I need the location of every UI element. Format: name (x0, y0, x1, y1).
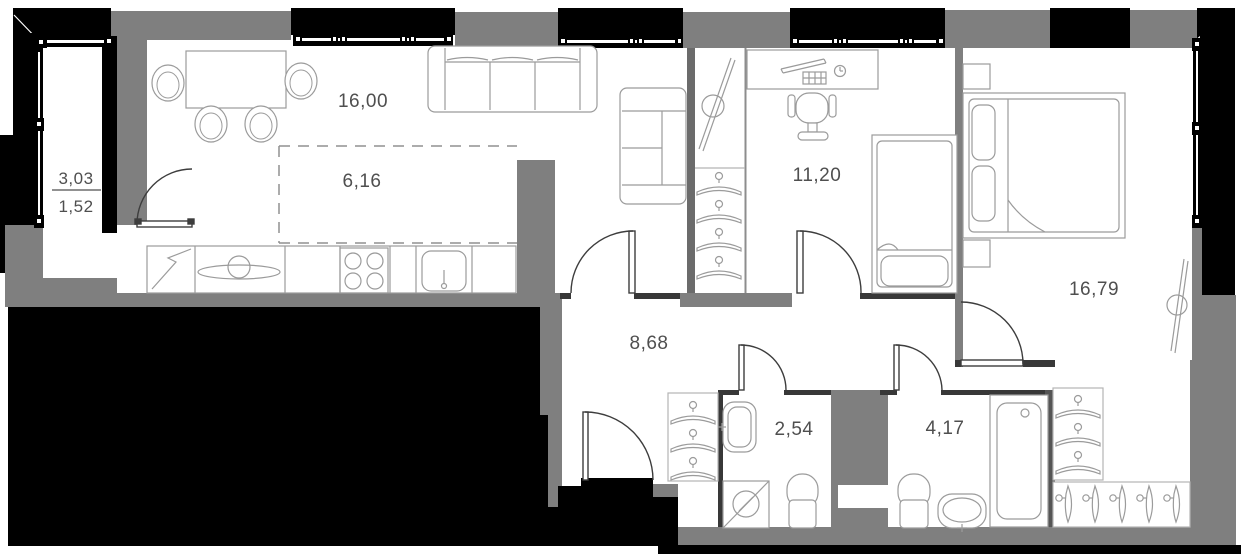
coat-rack (668, 393, 718, 481)
chair-icon (245, 106, 277, 142)
wall-segment (540, 293, 562, 415)
pillow-icon (972, 105, 995, 160)
wall-segment (13, 33, 35, 228)
wall-segment (1200, 295, 1236, 545)
sofa-3seat-icon (428, 46, 597, 112)
wall-segment (718, 390, 723, 527)
master-bedroom-area-label: 16,79 (1069, 279, 1119, 300)
pillow-icon (881, 256, 948, 286)
wall-segment (455, 12, 558, 46)
entrance-threshold (581, 478, 653, 486)
desk-icon (747, 50, 878, 89)
window-icon (35, 36, 116, 48)
wall-segment (683, 12, 790, 48)
hallway-area-label: 8,68 (630, 333, 669, 354)
wall-segment (1200, 8, 1235, 295)
wall-segment (945, 10, 1050, 48)
wall-segment (5, 293, 560, 307)
chair-icon (195, 106, 227, 142)
nightstand-icon (963, 64, 990, 89)
wall-segment (1050, 8, 1130, 48)
floor-plan: 16,00 6,16 11,20 16,79 8,68 2,54 4,17 3,… (0, 0, 1241, 554)
wall-segment (1130, 10, 1197, 48)
wall-segment (291, 8, 455, 35)
master-bedroom-floor (963, 367, 1055, 390)
window-icon (34, 47, 44, 228)
single-bed-icon (872, 135, 957, 293)
window-icon (293, 33, 453, 46)
living-kitchen-area-label: 16,00 (338, 91, 388, 112)
kitchen-counter (147, 246, 516, 293)
kitchen-zone-area-label: 6,16 (343, 171, 382, 192)
toilet-icon (898, 474, 930, 528)
exterior-void (658, 545, 1241, 554)
wall-segment (680, 293, 792, 307)
balcony-floor (43, 46, 102, 278)
wall-segment (955, 360, 961, 367)
wall-segment (1023, 360, 1055, 367)
floor-plan-svg: 16,00 6,16 11,20 16,79 8,68 2,54 4,17 3,… (0, 0, 1241, 554)
bedroom-area-label: 11,20 (793, 165, 842, 186)
washing-machine-icon (723, 481, 769, 528)
wall-segment (560, 293, 571, 299)
wall-segment (663, 527, 1236, 545)
wall-notch (838, 485, 888, 508)
double-bed-icon (963, 93, 1125, 238)
wall-segment (880, 390, 897, 395)
wall-segment (13, 8, 111, 36)
wall-segment (941, 390, 1055, 395)
washbasin-icon (718, 402, 756, 452)
window-icon (1192, 38, 1202, 228)
wall-segment (117, 40, 147, 225)
balcony-area-total: 3,03 (58, 169, 93, 188)
balcony-area-counted: 1,52 (58, 197, 93, 216)
wall-segment (102, 36, 117, 233)
wall-segment (111, 11, 291, 40)
exterior-void (8, 307, 558, 546)
washbasin-icon (938, 494, 986, 532)
window-icon (790, 35, 945, 48)
chair-icon (152, 65, 184, 101)
wall-segment (790, 8, 945, 37)
sofa-2seat-icon (620, 88, 686, 204)
pillow-icon (972, 166, 995, 221)
wall-segment (558, 8, 683, 37)
wall-segment (687, 48, 695, 293)
dining-table-icon (186, 51, 286, 108)
wall-segment (653, 484, 678, 497)
bathtub-icon (990, 395, 1048, 527)
wall-segment (517, 160, 555, 293)
wall-segment (718, 390, 739, 395)
bathroom-large-area-label: 4,17 (926, 418, 965, 439)
nightstand-icon (963, 240, 990, 267)
wall-segment (860, 293, 955, 299)
wall-segment (784, 390, 831, 395)
toilet-icon (787, 474, 818, 528)
wall-segment (634, 293, 683, 299)
bathroom-small-area-label: 2,54 (775, 419, 814, 440)
chair-icon (285, 63, 317, 99)
